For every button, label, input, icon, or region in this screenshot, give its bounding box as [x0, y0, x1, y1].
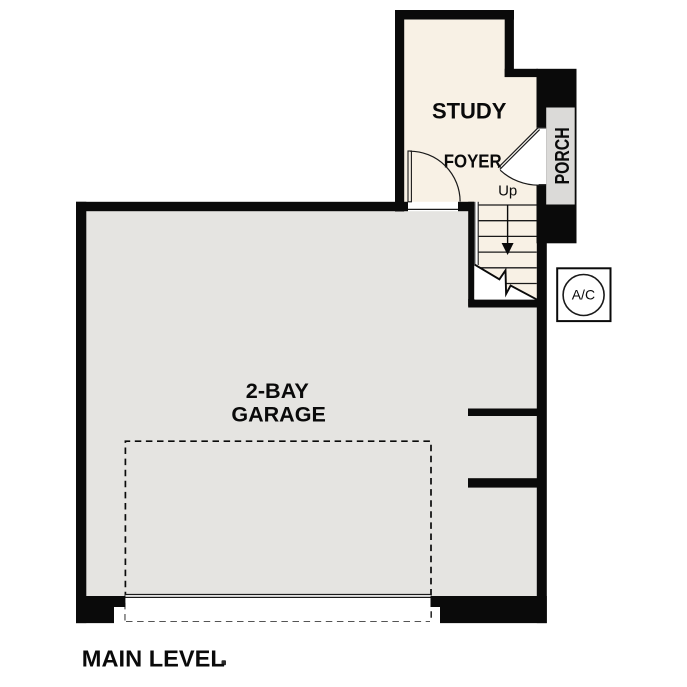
svg-text:Up: Up — [498, 183, 517, 200]
svg-text:A/C: A/C — [572, 286, 595, 302]
svg-text:PORCH: PORCH — [552, 127, 574, 184]
svg-text:2-BAY: 2-BAY — [246, 379, 309, 403]
svg-text:STUDY: STUDY — [432, 98, 507, 123]
svg-text:GARAGE: GARAGE — [231, 403, 326, 427]
svg-text:FOYER: FOYER — [444, 152, 502, 172]
svg-text:MAIN LEVEL: MAIN LEVEL — [82, 645, 225, 671]
